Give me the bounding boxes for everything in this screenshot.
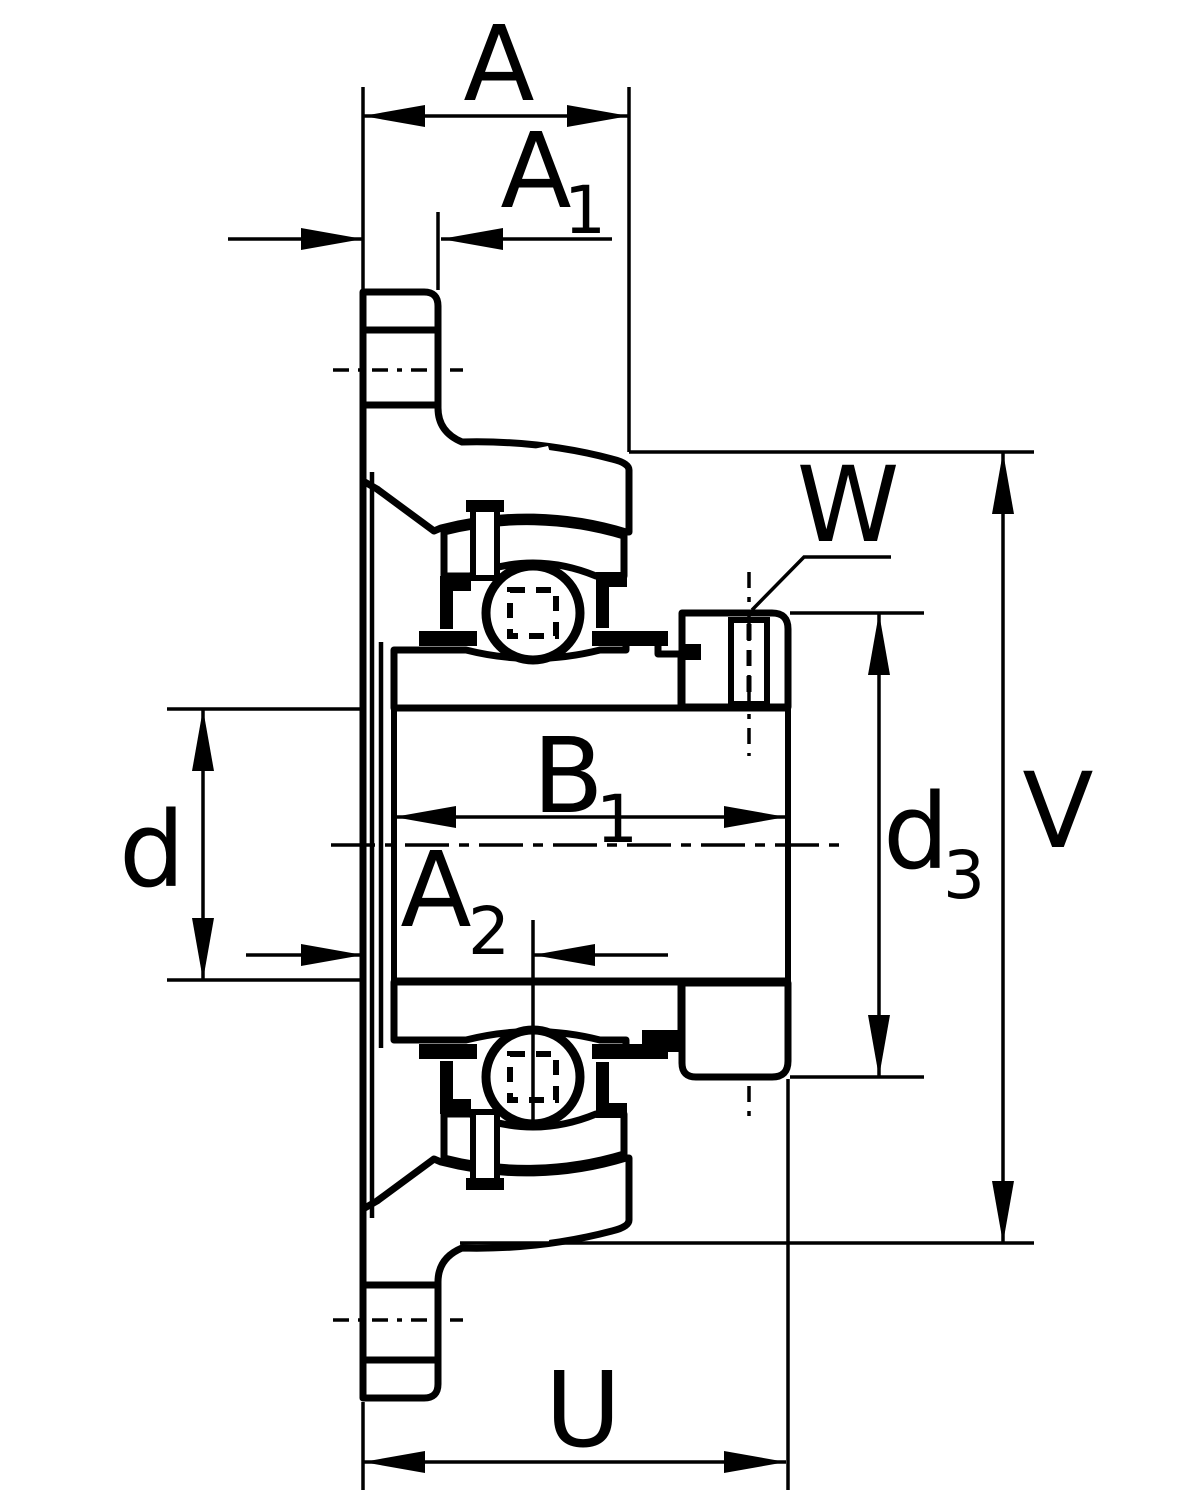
ball-upper [486, 566, 580, 660]
lube-hole-upper [473, 508, 497, 578]
label-A1-sub: 1 [564, 172, 606, 249]
label-A2: A [400, 829, 471, 951]
label-d3-sub: 3 [943, 837, 985, 914]
label-V: V [1022, 750, 1093, 872]
label-B1-sub: 1 [596, 781, 638, 858]
label-A1: A [500, 110, 571, 232]
label-W: W [797, 444, 900, 566]
label-B1: B [532, 715, 603, 837]
label-A2-sub: 2 [468, 893, 510, 970]
label-d: d [119, 789, 185, 911]
bolt-hole-upper [359, 330, 442, 405]
bolt-hole-lower [359, 1285, 442, 1360]
lube-hole-lower [473, 1112, 497, 1182]
label-A: A [463, 3, 534, 125]
technical-drawing: A A 1 A 2 B 1 d d 3 V W U [0, 0, 1200, 1500]
label-d3: d [883, 771, 949, 893]
label-U: U [545, 1349, 621, 1471]
